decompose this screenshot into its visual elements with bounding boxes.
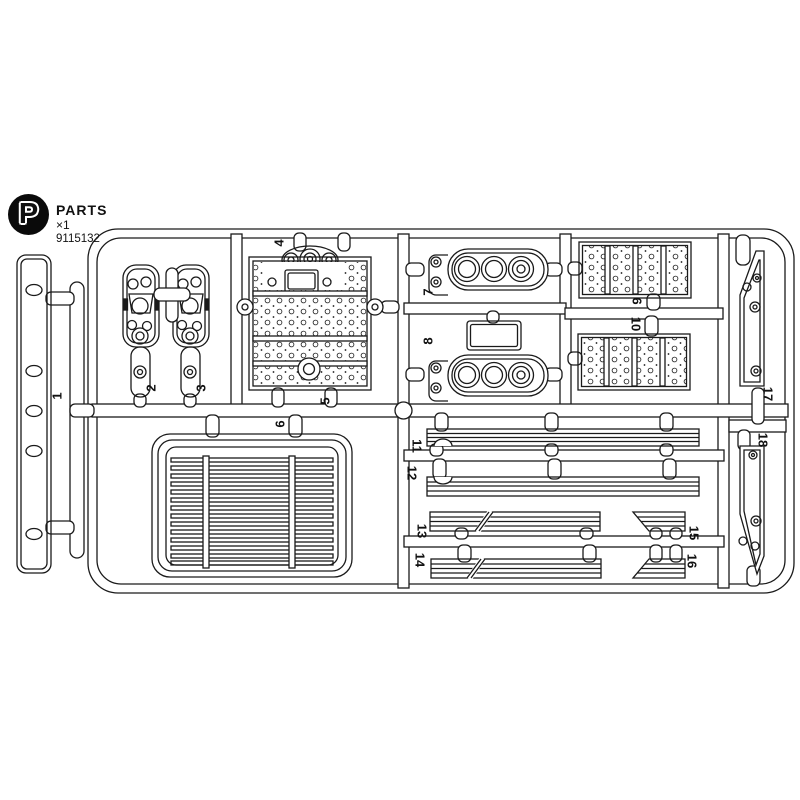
- part-11-trim-strip: [427, 429, 699, 446]
- grille-slats: [171, 458, 333, 565]
- part-18-bracket: [739, 446, 764, 574]
- part-12-trim-strip: [427, 477, 699, 496]
- part-8-lamp-cluster: [429, 355, 548, 401]
- part-number-5: 5: [317, 397, 332, 404]
- part-10-step-plate: [578, 334, 690, 390]
- part-number-7: 7: [420, 288, 435, 295]
- runner-junction: [395, 402, 412, 419]
- part-14-trim-strip: [431, 558, 601, 579]
- part-number-16: 16: [685, 554, 700, 568]
- part-number-6: 6: [272, 420, 287, 427]
- part-2-lamp-housing: [123, 265, 159, 397]
- part-number-8: 8: [420, 337, 435, 344]
- part-number-10: 10: [629, 317, 644, 331]
- part-number-15: 15: [687, 526, 702, 540]
- part-number-17: 17: [761, 387, 776, 401]
- sprue-diagram: 1 2 3 4 5 6 7 8 9 10 11 12 13 14 15 16 1…: [0, 0, 800, 800]
- part-number-14: 14: [413, 553, 428, 568]
- part-6-grille: [152, 434, 352, 577]
- part-13-trim-strip: [430, 511, 600, 532]
- part-number-4: 4: [271, 239, 286, 247]
- part-5-perforated-plate: [237, 257, 399, 390]
- part-7-lamp-cluster: [429, 249, 548, 295]
- part-number-9: 9: [629, 297, 644, 304]
- part-number-11: 11: [410, 439, 425, 453]
- part-number-18: 18: [756, 433, 771, 447]
- part-number-1: 1: [49, 392, 64, 399]
- part-number-12: 12: [405, 466, 420, 480]
- part-number-2: 2: [143, 384, 158, 391]
- part-9-step-plate: [579, 242, 691, 298]
- part-8-plate: [467, 321, 521, 350]
- parts-sheet: P PARTS ×1 9115132: [0, 0, 800, 800]
- part-number-3: 3: [193, 384, 208, 391]
- part-17-bracket: [740, 251, 764, 386]
- part-number-13: 13: [415, 524, 430, 538]
